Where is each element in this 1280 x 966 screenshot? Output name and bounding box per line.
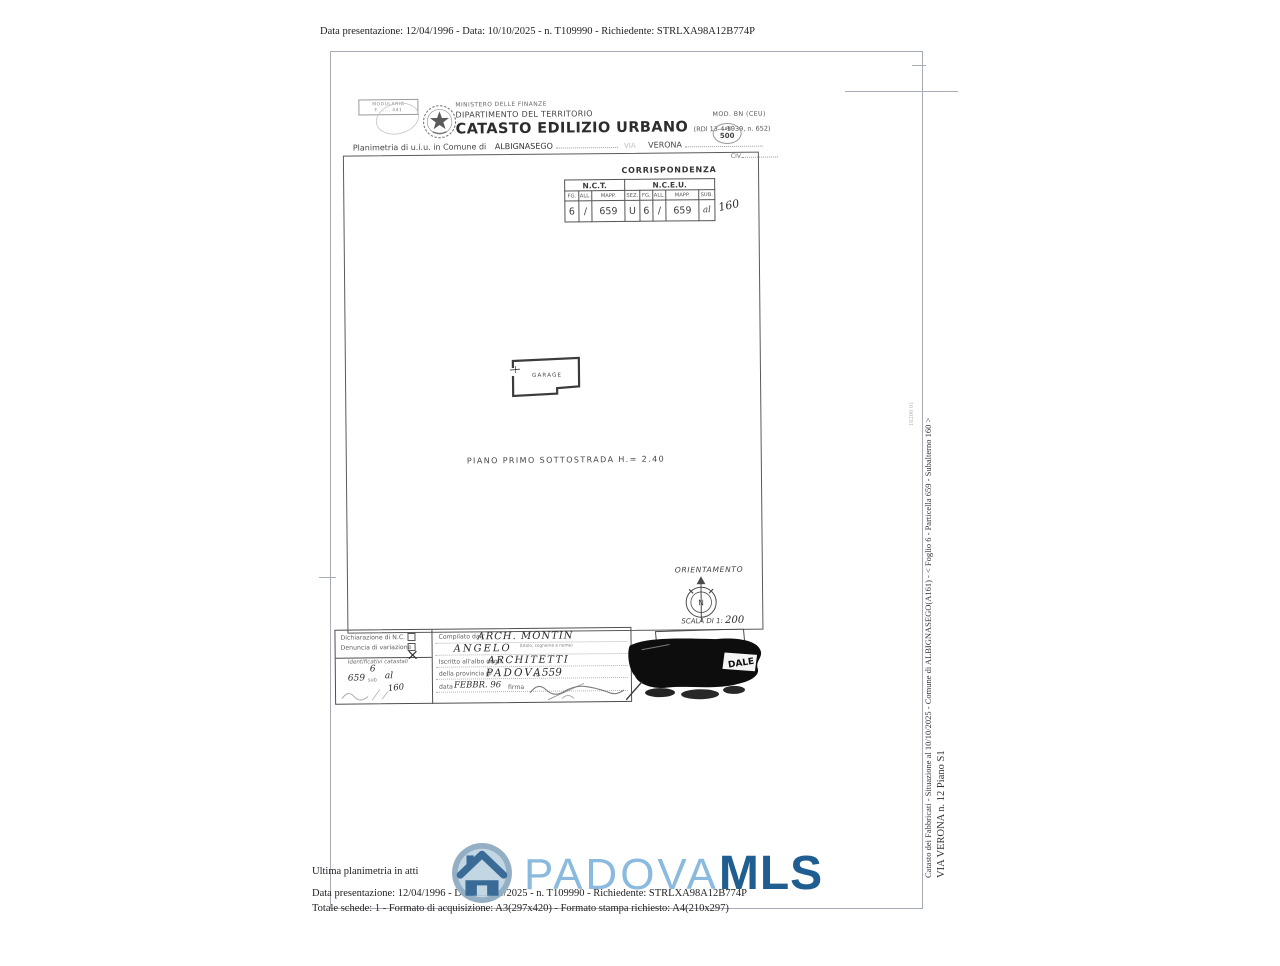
- col-header: MAPP.: [592, 190, 625, 200]
- dotted-rule: [555, 139, 617, 149]
- albo-handwritten: ARCHITETTI: [488, 654, 570, 666]
- data-label: data: [439, 684, 453, 691]
- faint-scribble: [338, 686, 398, 705]
- declaration-form: Dichiarazione di N.C. Denuncia di variaz…: [334, 627, 632, 705]
- id-mapp-handwritten: 659: [348, 673, 365, 683]
- id-sub-handwritten: al: [385, 671, 393, 681]
- redacted-stamp-area: DALE: [625, 629, 768, 704]
- cell-value: /: [653, 200, 666, 221]
- cell-value: 6: [640, 200, 653, 221]
- col-header: MAPP.: [666, 190, 699, 200]
- cell-value: 659: [666, 200, 699, 221]
- cell-value: 659: [592, 200, 625, 221]
- brand-mls: MLS: [719, 847, 823, 900]
- compilato-sublabel: (titolo, cognome e nome): [520, 642, 573, 648]
- signature-scribble: [522, 678, 630, 703]
- sidebar-faint-code: 16200 01: [908, 386, 915, 426]
- dichiarazione-checkbox: [407, 633, 415, 641]
- cell-value: U: [625, 200, 640, 221]
- sidebar-line2: VIA VERONA n. 12 Piano S1: [935, 376, 949, 878]
- scanned-cadastral-document-page: { "page": { "top_line": "Data presentazi…: [0, 0, 1280, 960]
- compilato-handwritten-1: ARCH. MONTIN: [477, 630, 573, 642]
- provincia-label: della provincia di: [439, 670, 492, 678]
- albo-number-handwritten: 559: [542, 667, 562, 679]
- footer-line1: Ultima planimetria in atti: [312, 866, 418, 877]
- brand-padova: PADOVA: [524, 850, 719, 899]
- via-label: VIA: [624, 142, 636, 150]
- sub-label: sub: [368, 677, 377, 683]
- garage-floorplan-shape: GARAGE: [510, 355, 584, 400]
- compass-letter: N: [698, 598, 704, 607]
- padovamls-watermark: [451, 842, 513, 908]
- cell-value-handwritten: al: [699, 200, 715, 221]
- denuncia-checkbox-checked: [408, 643, 416, 651]
- mod-bn-label: MOD. BN (CEU): [712, 111, 765, 119]
- col-header: FG.: [640, 190, 653, 200]
- scanned-content: MODULARIO F. ..... 441 MINISTERO DELLE F…: [0, 0, 1280, 966]
- col-header: SEZ.: [625, 190, 640, 200]
- nct-group-header: N.C.T.: [565, 179, 625, 191]
- cell-value: 6: [565, 201, 579, 222]
- compilato-handwritten-2: ANGELO: [454, 643, 512, 655]
- floor-level-label: PIANO PRIMO SOTTOSTRADA H.= 2.40: [467, 455, 665, 466]
- dichiarazione-label: Dichiarazione di N.C.: [340, 634, 405, 642]
- orientation-label: ORIENTAMENTO: [675, 565, 743, 575]
- padovamls-wordmark: PADOVAMLS: [524, 846, 823, 901]
- cell-value: /: [579, 201, 592, 222]
- italy-emblem-icon: [420, 103, 458, 141]
- x-mark-icon: [409, 651, 417, 659]
- form-divider-v: [431, 630, 433, 704]
- scale-value-handwritten: 200: [725, 615, 744, 626]
- sidebar-line1: Catasto dei Fabbricati - Situazione al 1…: [922, 376, 935, 878]
- footer-line3: Totale schede: 1 - Formato di acquisizio…: [312, 903, 729, 914]
- id-fg-handwritten: 6: [370, 664, 376, 674]
- corrispondenza-table: N.C.T. N.C.E.U. FG. ALL. MAPP. SEZ. FG. …: [564, 178, 715, 222]
- n-label: n.: [534, 672, 540, 679]
- denuncia-label: Denuncia di variazione: [341, 644, 412, 652]
- col-header: ALL.: [579, 191, 592, 201]
- scale-label: SCALA DI 1: 200: [681, 615, 744, 627]
- redaction-blob: DALE: [625, 629, 768, 704]
- col-header: ALL.: [653, 190, 666, 200]
- planimetria-line: Planimetria di u.i.u. in Comune di ALBIG…: [353, 138, 763, 153]
- dotted-rule: [684, 138, 762, 148]
- planimetria-label: Planimetria di u.i.u. in Comune di: [353, 142, 487, 152]
- identificativi-label: Identificativi catastali: [348, 659, 408, 666]
- data-handwritten: FEBBR. 96: [454, 680, 501, 690]
- col-header: SUB.: [699, 190, 715, 200]
- corrispondenza-title: CORRISPONDENZA: [589, 165, 749, 176]
- sidebar-vertical-text: Catasto dei Fabbricati - Situazione al 1…: [922, 376, 950, 878]
- col-header: FG.: [565, 191, 579, 201]
- via-value: VERONA: [648, 140, 682, 149]
- padovamls-house-icon: [451, 842, 513, 904]
- garage-label: GARAGE: [532, 373, 562, 379]
- nceu-group-header: N.C.E.U.: [625, 179, 715, 191]
- comune-value: ALBIGNASEGO: [495, 142, 553, 152]
